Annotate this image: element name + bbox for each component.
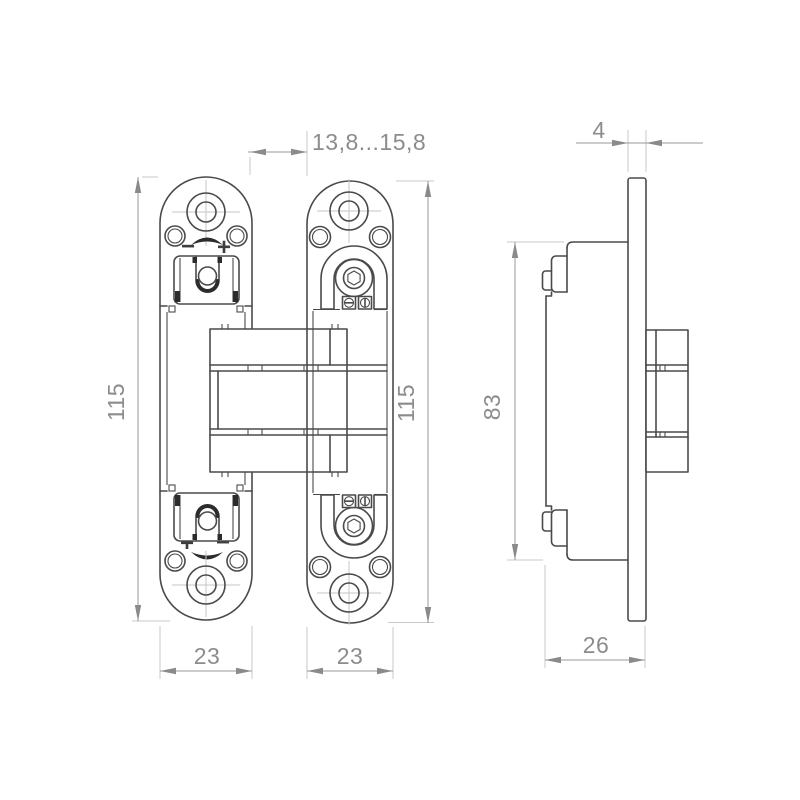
side-body-top-profile (543, 242, 629, 296)
dimension-thickness: 4 (576, 117, 703, 172)
technical-drawing-page: − + + − (0, 0, 800, 800)
dim-width-right-label: 23 (337, 643, 364, 669)
dim-gap-label: 13,8...15,8 (312, 129, 426, 155)
dim-height-left-label: 115 (103, 383, 129, 421)
hinge-technical-drawing: − + + − (0, 0, 800, 800)
dimension-width-left: 23 (160, 626, 252, 679)
dimension-gap: 13,8...15,8 (248, 129, 426, 176)
side-knuckle-block (646, 330, 688, 472)
dimension-width-right: 23 (307, 627, 393, 679)
dim-depth-label: 26 (583, 632, 610, 658)
hex-boss (336, 260, 373, 297)
dim-width-left-label: 23 (194, 643, 221, 669)
side-view (543, 178, 689, 621)
dimension-height-right: 115 (388, 181, 434, 623)
side-body-bottom-profile (543, 506, 629, 560)
side-mounting-plate (628, 178, 646, 621)
pivot-body-outline (210, 329, 347, 472)
dim-height-right-label: 115 (393, 384, 419, 422)
dim-thickness-label: 4 (592, 117, 605, 143)
dim-side-height-label: 83 (479, 394, 505, 421)
